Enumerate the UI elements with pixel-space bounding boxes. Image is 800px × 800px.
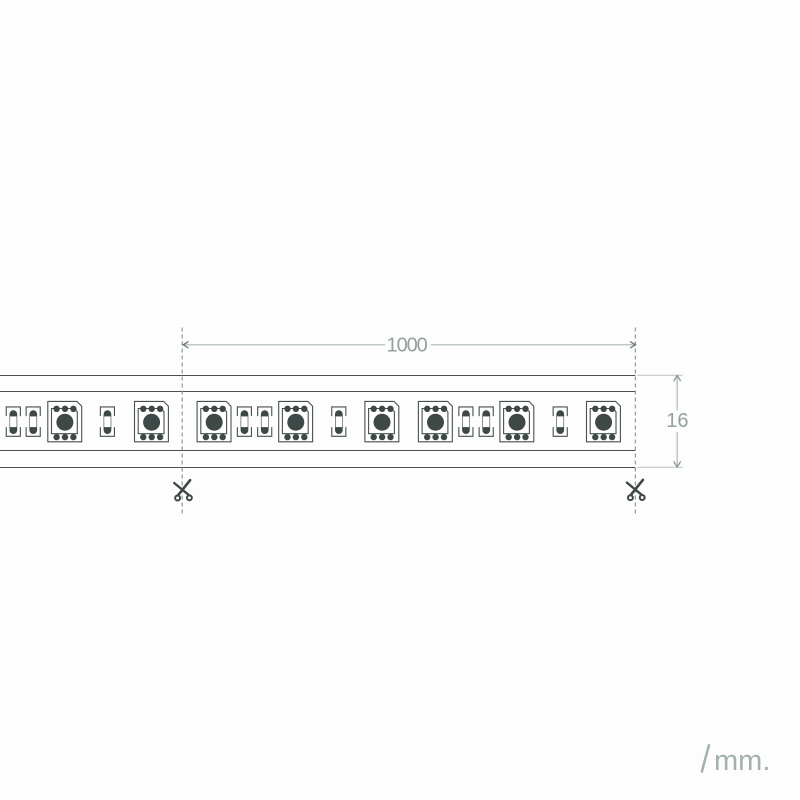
svg-text:1000: 1000 xyxy=(387,335,428,357)
svg-text:mm.: mm. xyxy=(714,745,770,777)
svg-text:16: 16 xyxy=(666,410,688,432)
